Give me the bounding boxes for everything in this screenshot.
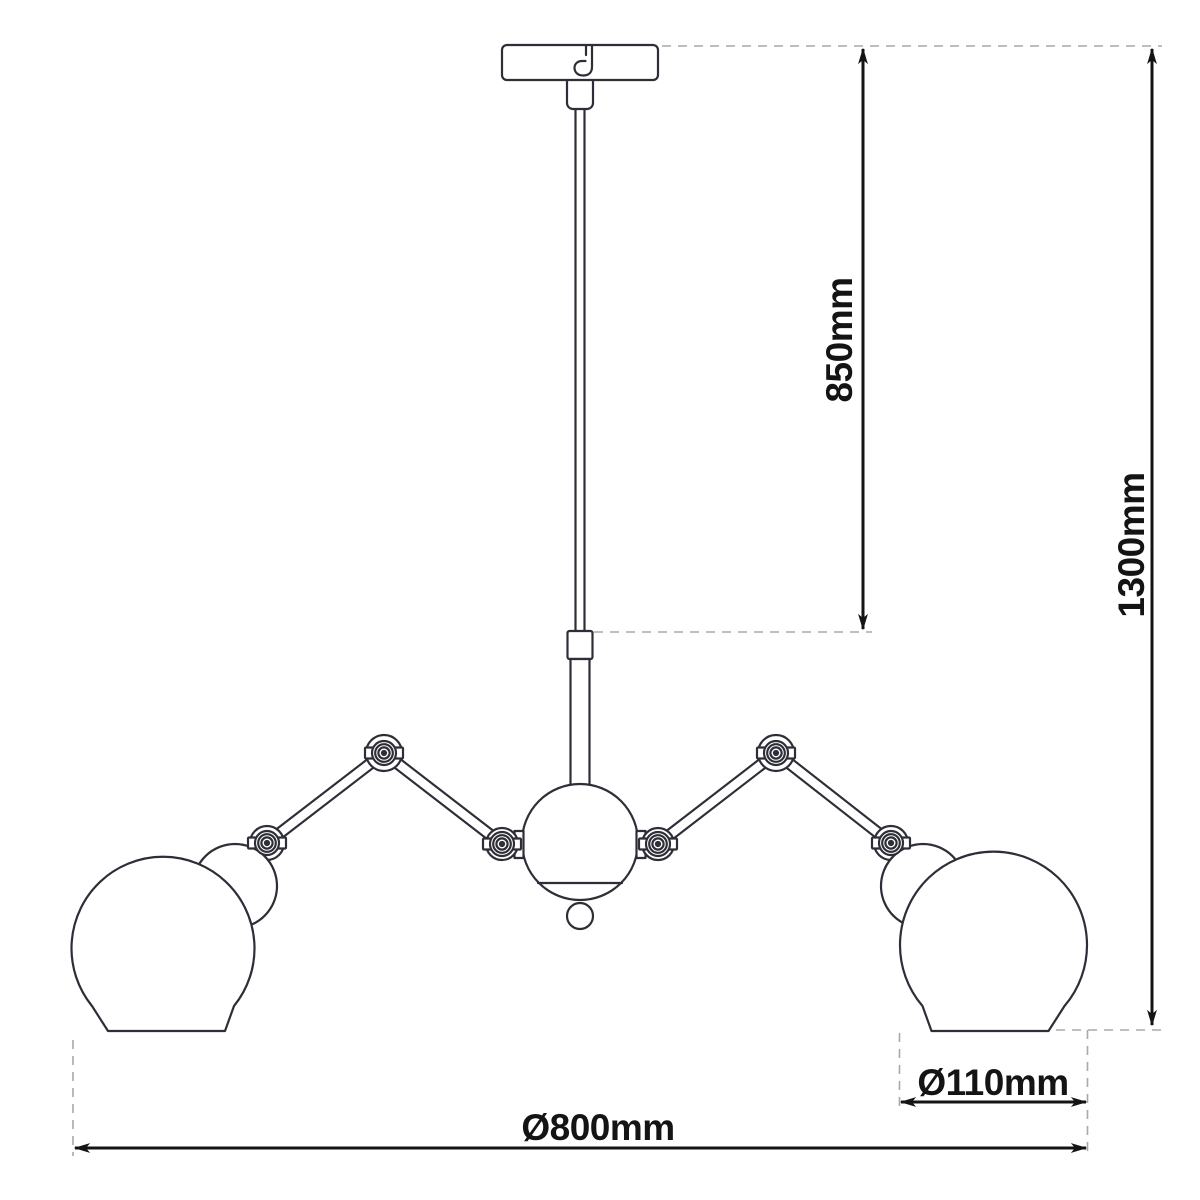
right-globe-shade: [900, 852, 1087, 1031]
right-arm-inner-segment-fill: [658, 753, 776, 844]
right-arm-outer-segment-fill: [776, 753, 891, 843]
knob-center: [888, 840, 894, 846]
dimension-label-total-drop: 1300mm: [1111, 472, 1152, 617]
left-globe-shade: [72, 857, 255, 1031]
center-tube: [571, 659, 590, 789]
dimension-label-fixture-diameter: Ø800mm: [521, 1107, 674, 1148]
knob-center: [264, 840, 270, 846]
knob-center: [499, 841, 505, 847]
left-arm-inner-segment-fill: [384, 753, 502, 844]
knob-center: [773, 750, 779, 756]
left-arm-outer-segment-fill: [267, 753, 384, 843]
dimension-label-shade-diameter: Ø110mm: [917, 1062, 1068, 1103]
lamp-dimension-drawing: 850mm 1300mm Ø110mm Ø800mm: [0, 0, 1200, 1200]
dimension-label-rod-drop: 850mm: [819, 277, 860, 402]
knob-center: [381, 750, 387, 756]
suspension-rod: [576, 100, 585, 635]
finial-ball: [567, 903, 593, 929]
technical-drawing-page: 850mm 1300mm Ø110mm Ø800mm: [0, 0, 1200, 1200]
knob-center: [655, 841, 661, 847]
rod-collar: [568, 631, 593, 659]
